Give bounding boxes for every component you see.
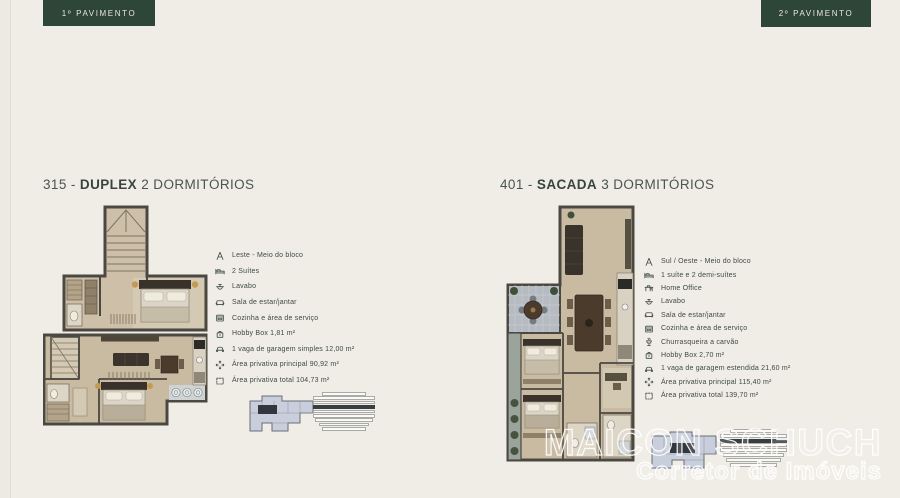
unit-dorms: 2 DORMITÓRIOS	[137, 177, 254, 192]
level-row-highlighted	[313, 405, 375, 409]
bed-suite-upper	[132, 280, 198, 322]
compass-icon	[644, 257, 654, 267]
page-fold-edge	[0, 0, 11, 498]
unit-number: 315 -	[43, 177, 80, 192]
feature-list-401: Sul / Oeste - Meio do bloco 1 suíte e 2 …	[644, 255, 790, 402]
sink-icon	[215, 282, 225, 292]
area-outline-icon	[644, 391, 654, 401]
feature-text: Sala de estar/jantar	[232, 299, 297, 306]
bed-icon	[644, 270, 654, 280]
kitchen-icon	[215, 313, 225, 323]
balcony-sacada	[508, 285, 560, 333]
level-row	[313, 410, 375, 414]
feature-item: Leste - Meio do bloco	[215, 248, 354, 264]
feature-item: 1 vaga de garagem simples 12,00 m²	[215, 342, 354, 358]
sofa-icon	[215, 298, 225, 308]
hobby-box-icon	[215, 329, 225, 339]
unit-number: 401 -	[500, 177, 537, 192]
feature-text: Sul / Oeste - Meio do bloco	[661, 258, 751, 265]
level-row	[319, 423, 370, 427]
level-row	[322, 427, 365, 431]
bed-icon	[215, 266, 225, 276]
feature-item: Hobby Box 1,81 m²	[215, 326, 354, 342]
feature-item: Home Office	[644, 282, 790, 295]
feature-text: Leste - Meio do bloco	[232, 252, 303, 259]
car-icon	[215, 344, 225, 354]
sofa-icon	[644, 310, 654, 320]
feature-item: Cozinha e área de serviço	[215, 310, 354, 326]
feature-text: Lavabo	[232, 283, 256, 290]
compass-icon	[215, 251, 225, 261]
feature-item: Sala de estar/jantar	[215, 295, 354, 311]
desk-icon	[644, 283, 654, 293]
level-row	[322, 392, 365, 396]
hobby-box-icon	[644, 350, 654, 360]
feature-text: 1 vaga de garagem simples 12,00 m²	[232, 346, 354, 353]
laundry-washers	[172, 388, 202, 396]
brochure-page: 1º PAVIMENTO 2º PAVIMENTO 315 - DUPLEX 2…	[0, 0, 900, 498]
feature-text: Hobby Box 1,81 m²	[232, 330, 295, 337]
kitchen-counter	[617, 273, 633, 365]
feature-text: Área privativa principal 115,40 m²	[661, 379, 772, 386]
feature-text: Área privativa principal 90,92 m²	[232, 361, 339, 368]
unit-title-401: 401 - SACADA 3 DORMITÓRIOS	[500, 177, 714, 192]
feature-text: Lavabo	[661, 298, 685, 305]
floor-plan-315	[43, 204, 208, 426]
area-outline-icon	[215, 376, 225, 386]
feature-text: Hobby Box 2,70 m²	[661, 352, 724, 359]
unit-type: DUPLEX	[80, 177, 137, 192]
feature-text: Área privativa total 104,73 m²	[232, 377, 329, 384]
feature-item: Sala de estar/jantar	[644, 309, 790, 322]
feature-item: Churrasqueira a carvão	[644, 335, 790, 348]
grill-icon	[644, 337, 654, 347]
sink-icon	[644, 297, 654, 307]
feature-item: Hobby Box 2,70 m²	[644, 349, 790, 362]
bed-suite-lower	[95, 382, 153, 420]
level-row	[315, 418, 372, 422]
watermark-name: MAICON SCHUCH	[544, 424, 882, 461]
key-plan-315	[248, 393, 315, 433]
feature-item: Área privativa principal 90,92 m²	[215, 357, 354, 373]
feature-text: Home Office	[661, 285, 702, 292]
unit-dorms: 3 DORMITÓRIOS	[597, 177, 714, 192]
feature-item: Lavabo	[215, 279, 354, 295]
feature-item: Lavabo	[644, 295, 790, 308]
unit-title-315: 315 - DUPLEX 2 DORMITÓRIOS	[43, 177, 254, 192]
feature-text: Churrasqueira a carvão	[661, 339, 739, 346]
feature-item: 2 Suítes	[215, 264, 354, 280]
level-row	[313, 401, 375, 405]
feature-item: 1 vaga de garagem estendida 21,60 m²	[644, 362, 790, 375]
feature-item: Área privativa principal 115,40 m²	[644, 376, 790, 389]
feature-item: Cozinha e área de serviço	[644, 322, 790, 335]
feature-text: 1 vaga de garagem estendida 21,60 m²	[661, 365, 790, 372]
feature-text: Cozinha e área de serviço	[232, 315, 318, 322]
home-office	[603, 368, 631, 408]
feature-text: Sala de estar/jantar	[661, 312, 726, 319]
feature-list-315: Leste - Meio do bloco 2 Suítes Lavabo Sa…	[215, 248, 354, 388]
staircase-lower	[51, 337, 79, 379]
unit-type: SACADA	[537, 177, 597, 192]
watermark: MAICON SCHUCH Corretor de Imóveis	[544, 424, 882, 486]
level-row	[313, 414, 375, 418]
feature-item: Área privativa total 139,70 m²	[644, 389, 790, 402]
feature-item: 1 suíte e 2 demi-suítes	[644, 268, 790, 281]
car-icon	[644, 364, 654, 374]
floor-tag-2-pavimento: 2º PAVIMENTO	[761, 0, 871, 27]
feature-item: Área privativa total 104,73 m²	[215, 373, 354, 389]
feature-text: 2 Suítes	[232, 268, 259, 275]
highlighted-unit	[258, 405, 277, 414]
feature-item: Sul / Oeste - Meio do bloco	[644, 255, 790, 268]
expand-arrows-icon	[644, 377, 654, 387]
expand-arrows-icon	[215, 360, 225, 370]
level-row	[313, 396, 375, 400]
level-indicator-315	[313, 392, 375, 432]
feature-text: Cozinha e área de serviço	[661, 325, 747, 332]
kitchen-icon	[644, 324, 654, 334]
feature-text: Área privativa total 139,70 m²	[661, 392, 758, 399]
feature-text: 1 suíte e 2 demi-suítes	[661, 272, 736, 279]
floor-tag-1-pavimento: 1º PAVIMENTO	[43, 0, 155, 26]
